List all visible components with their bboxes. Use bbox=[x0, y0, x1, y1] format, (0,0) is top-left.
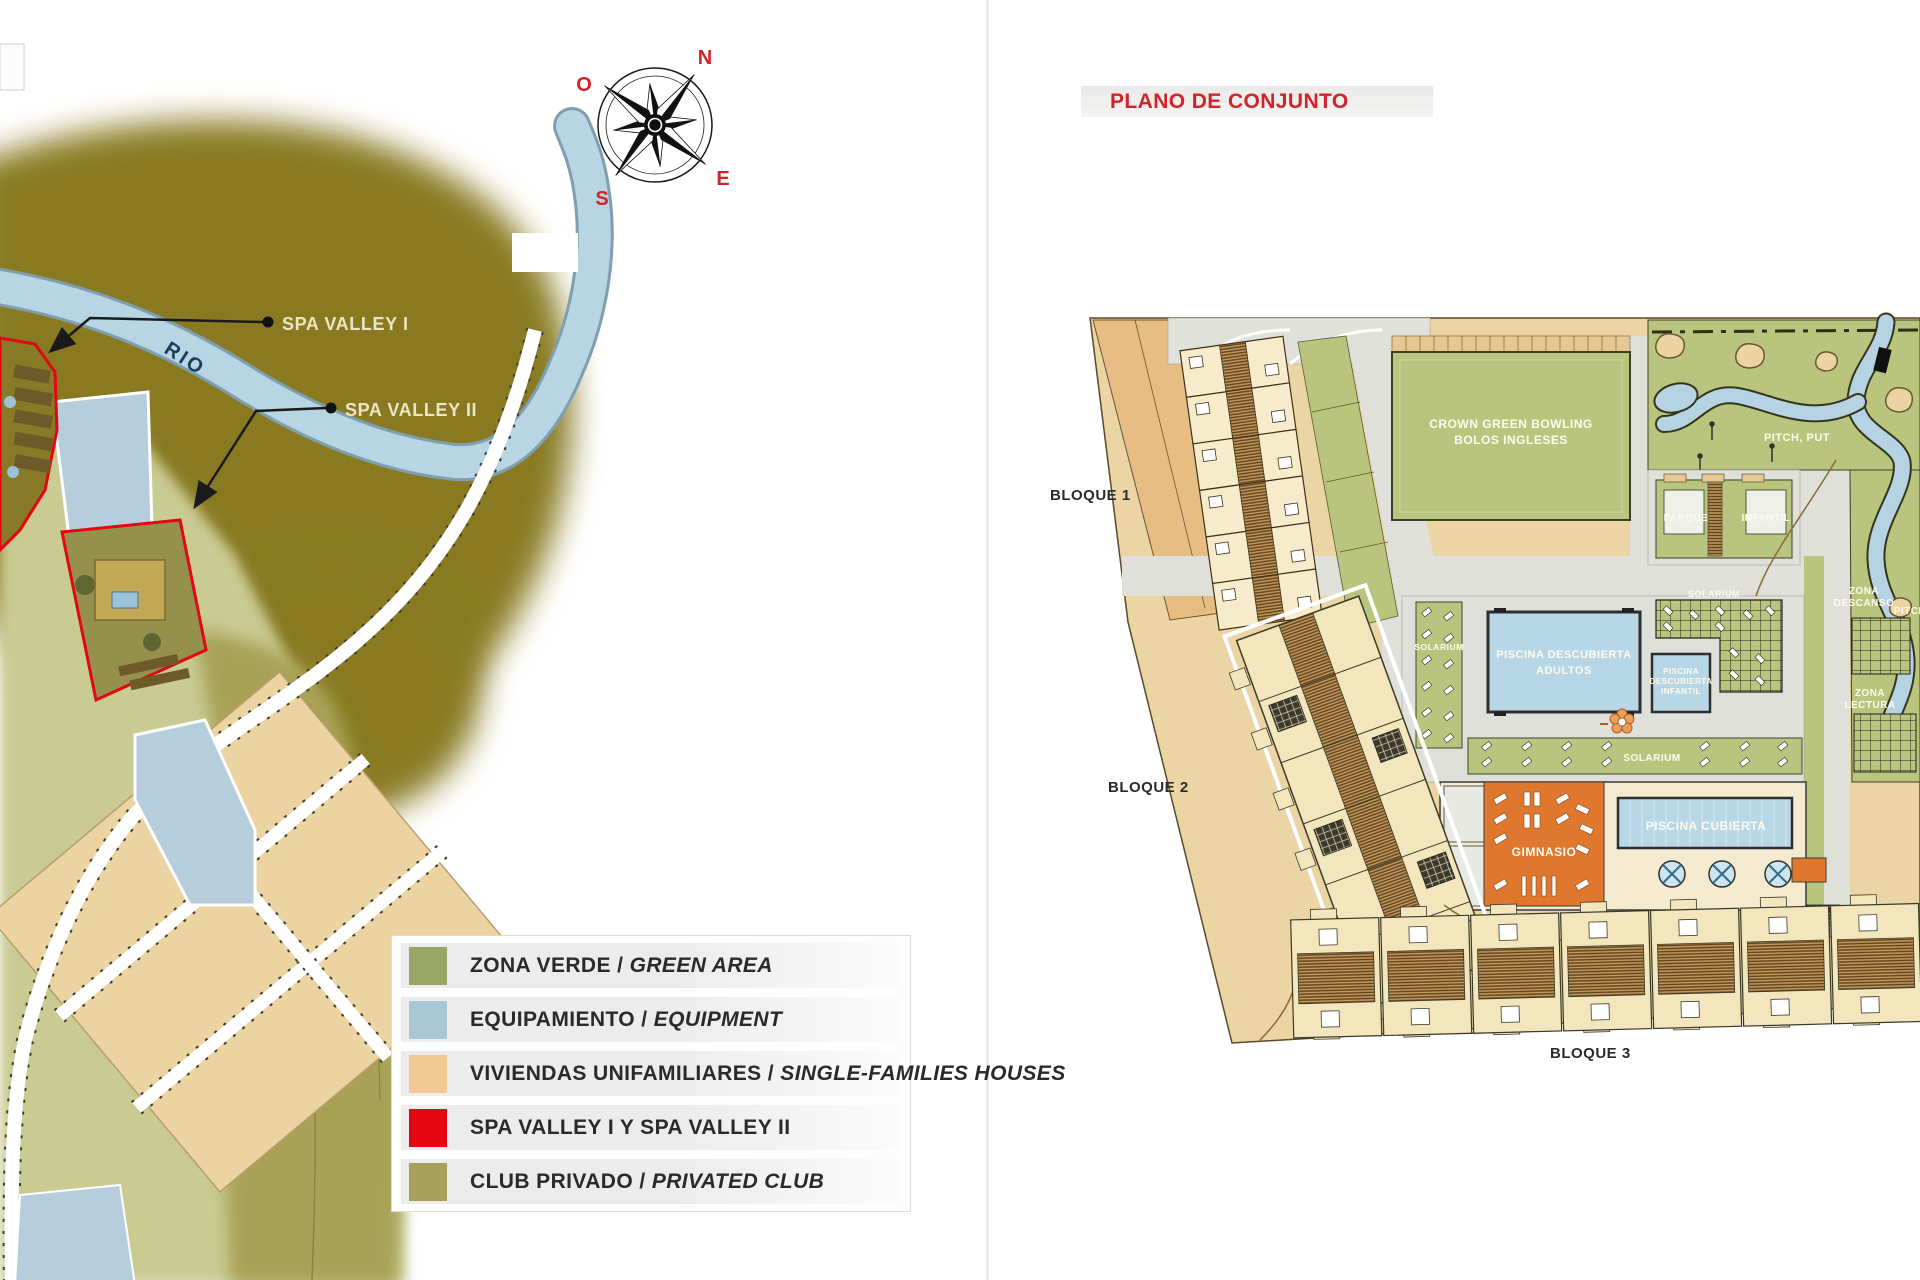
legend-swatch-red bbox=[409, 1109, 447, 1147]
parque-label-1: PARQUE bbox=[1663, 513, 1708, 524]
legend-label: VIVIENDAS UNIFAMILIARES / SINGLE-FAMILIE… bbox=[470, 1062, 1066, 1086]
legend-row-zona-verde: ZONA VERDE / GREEN AREA bbox=[401, 943, 901, 988]
jacuzzi-circles bbox=[1659, 861, 1791, 887]
housing-unit bbox=[1740, 896, 1831, 1028]
legend-label: EQUIPAMIENTO / EQUIPMENT bbox=[470, 1008, 782, 1032]
spa2-pool bbox=[112, 592, 138, 608]
road-right-column bbox=[1824, 556, 1850, 912]
plan-title-bar: PLANO DE CONJUNTO bbox=[1081, 86, 1433, 117]
piscina-adultos: PISCINA DESCUBIERTA ADULTOS bbox=[1488, 608, 1640, 716]
housing-unit bbox=[1830, 894, 1920, 1026]
pergola-grid bbox=[1854, 714, 1916, 772]
road-parque-gap bbox=[1800, 470, 1850, 556]
orange-annex bbox=[1792, 858, 1826, 882]
housing-unit bbox=[1470, 903, 1561, 1035]
spa1-pond bbox=[4, 396, 16, 408]
equipment-area-triangle bbox=[52, 392, 152, 545]
spa2-club-building bbox=[95, 560, 165, 620]
maps-canvas: SPA VALLEY I SPA VALLEY II RIO bbox=[0, 0, 1920, 1280]
pitch-side-label: PITCH bbox=[1894, 606, 1920, 617]
piscina-cubierta-label: PISCINA CUBIERTA bbox=[1646, 819, 1767, 833]
compass-e: E bbox=[716, 168, 729, 190]
compass-o: O bbox=[576, 74, 592, 96]
legend-label: ZONA VERDE / GREEN AREA bbox=[470, 954, 773, 978]
descanso-label-2: DESCANSO bbox=[1834, 598, 1895, 609]
equipment-area-south bbox=[15, 1185, 135, 1280]
legend-row-club-privado: CLUB PRIVADO / PRIVATED CLUB bbox=[401, 1159, 901, 1204]
bloque3-label: BLOQUE 3 bbox=[1550, 1045, 1631, 1062]
gimnasio-label: GIMNASIO bbox=[1512, 845, 1577, 859]
solarium-bottom-strip: SOLARIUM bbox=[1468, 738, 1802, 774]
infantil-label-1: PISCINA bbox=[1663, 667, 1699, 676]
legend-label: CLUB PRIVADO / PRIVATED CLUB bbox=[470, 1170, 824, 1194]
brochure-page: SPA VALLEY I SPA VALLEY II RIO bbox=[0, 0, 1920, 1280]
housing-unit bbox=[1290, 908, 1381, 1040]
adultos-label-1: PISCINA DESCUBIERTA bbox=[1496, 649, 1631, 661]
bowling-label-1: CROWN GREEN BOWLING bbox=[1429, 417, 1593, 431]
corner-tab bbox=[0, 44, 24, 90]
legend-row-equipamiento: EQUIPAMIENTO / EQUIPMENT bbox=[401, 997, 901, 1042]
pool-zone: SOLARIUM PISCINA DESCUBIERTA ADULTOS PIS… bbox=[1402, 589, 1804, 782]
legend-swatch-tan bbox=[409, 1055, 447, 1093]
legend-row-viviendas: VIVIENDAS UNIFAMILIARES / SINGLE-FAMILIE… bbox=[401, 1051, 901, 1096]
spa2-trees bbox=[75, 575, 95, 595]
pitch-put-label: PITCH, PUT bbox=[1764, 432, 1830, 444]
compass-s: S bbox=[595, 188, 608, 210]
adultos-label-2: ADULTOS bbox=[1536, 665, 1592, 677]
legend-swatch-green bbox=[409, 947, 447, 985]
legend-label: SPA VALLEY I Y SPA VALLEY II bbox=[470, 1116, 790, 1140]
callout-spa1-label: SPA VALLEY I bbox=[282, 314, 409, 334]
solarium-left-strip: SOLARIUM bbox=[1414, 602, 1463, 748]
legend-row-spa-valley: SPA VALLEY I Y SPA VALLEY II bbox=[401, 1105, 901, 1150]
lectura-label-1: ZONA bbox=[1855, 688, 1885, 699]
infantil-label-2: DESCUBIERTA bbox=[1650, 677, 1713, 686]
legend-swatch-blue bbox=[409, 1001, 447, 1039]
housing-unit bbox=[1560, 901, 1651, 1033]
bowling-label-2: BOLOS INGLESES bbox=[1454, 433, 1568, 447]
piscina-infantil: PISCINA DESCUBIERTA INFANTIL bbox=[1650, 654, 1713, 712]
bowling-green: CROWN GREEN BOWLING BOLOS INGLESES bbox=[1392, 336, 1630, 520]
callout-spa2-label: SPA VALLEY II bbox=[345, 400, 477, 420]
infantil-label-3: INFANTIL bbox=[1661, 687, 1701, 696]
solarium-left-label: SOLARIUM bbox=[1414, 642, 1463, 652]
housing-unit bbox=[1650, 898, 1741, 1030]
parque-label-2: INFANTIL bbox=[1742, 513, 1791, 524]
site-plan: CROWN GREEN BOWLING BOLOS INGLESES bbox=[1050, 318, 1920, 1062]
white-patch bbox=[512, 233, 578, 272]
page-gutter bbox=[986, 0, 989, 1280]
gimnasio-block: GIMNASIO bbox=[1484, 782, 1604, 906]
plan-title: PLANO DE CONJUNTO bbox=[1110, 90, 1349, 114]
solarium-bottom-label: SOLARIUM bbox=[1623, 753, 1680, 764]
spa2-trees bbox=[143, 633, 161, 651]
descanso-label-1: ZONA bbox=[1849, 586, 1879, 597]
legend: ZONA VERDE / GREEN AREA EQUIPAMIENTO / E… bbox=[391, 935, 911, 1212]
housing-unit bbox=[1380, 905, 1471, 1037]
solarium-top-label: SOLARIUM bbox=[1688, 589, 1740, 599]
legend-swatch-olive bbox=[409, 1163, 447, 1201]
lectura-label-2: LECTURA bbox=[1844, 700, 1895, 711]
bloque1-label: BLOQUE 1 bbox=[1050, 487, 1131, 504]
compass-n: N bbox=[698, 47, 712, 69]
spa1-pond bbox=[7, 466, 19, 478]
pergola-grid bbox=[1852, 618, 1910, 674]
bloque2-label: BLOQUE 2 bbox=[1108, 779, 1189, 796]
